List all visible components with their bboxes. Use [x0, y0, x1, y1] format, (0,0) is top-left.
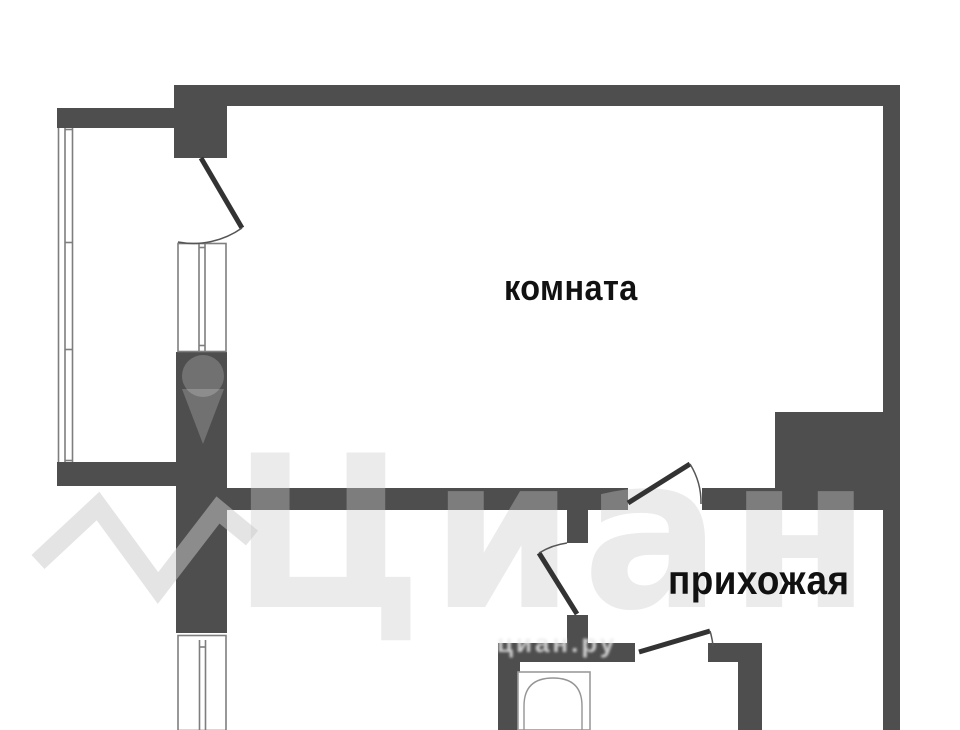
- west-door-arc: [539, 543, 567, 553]
- floor-plan: Циан циан.ру комната прихожая: [0, 0, 960, 730]
- room-door-leaf: [628, 464, 690, 503]
- bathroom-door-leaf: [639, 631, 710, 652]
- doors: [178, 158, 713, 652]
- balcony-door-leaf: [201, 158, 242, 228]
- bathroom-door-arc: [710, 631, 713, 646]
- doors-layer: [0, 0, 960, 730]
- west-door-leaf: [539, 553, 577, 614]
- balcony-door-arc: [178, 228, 242, 243]
- room-label-prihozhaya: прихожая: [668, 560, 849, 601]
- room-label-komnata: комната: [504, 270, 638, 306]
- room-door-arc: [690, 464, 701, 504]
